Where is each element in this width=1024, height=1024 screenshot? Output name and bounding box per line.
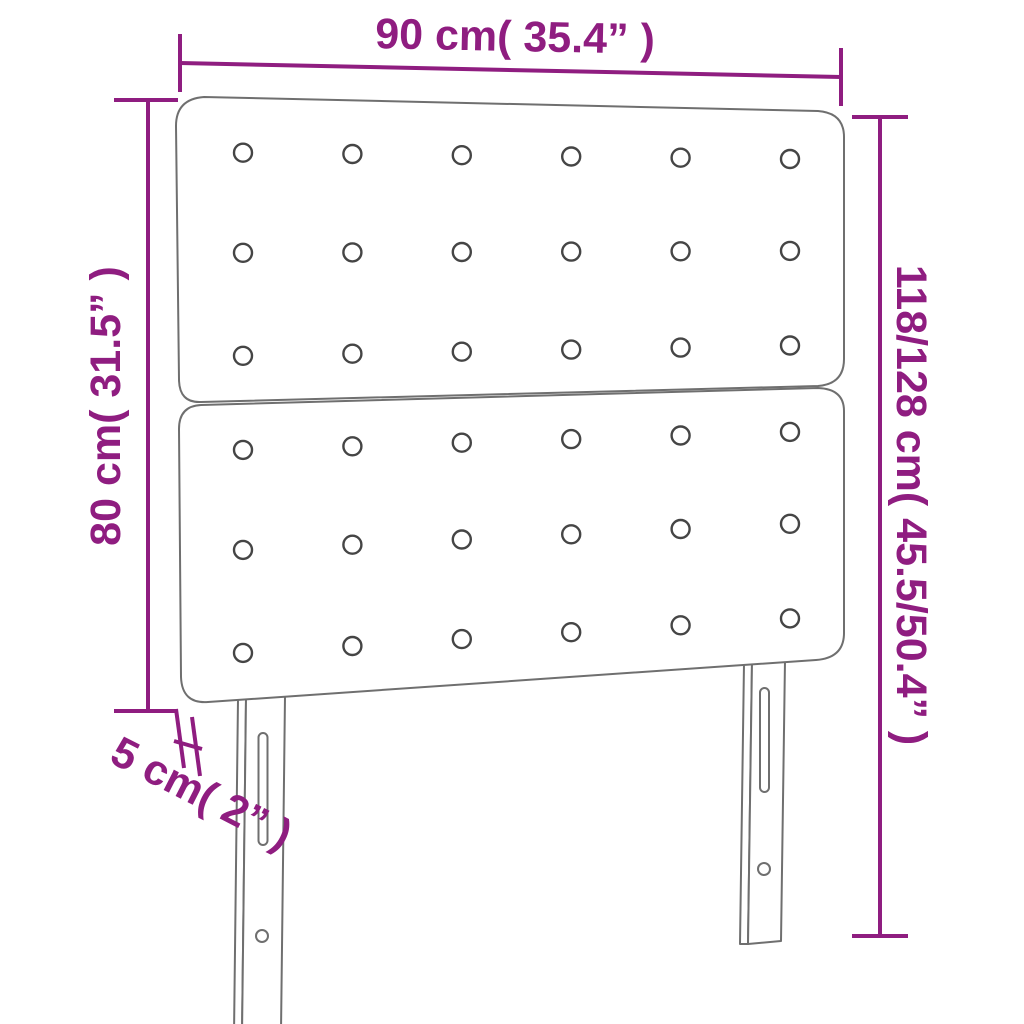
panel-height-dimension: 80 cm( 31.5” ): [82, 100, 178, 711]
headboard-left-leg: [234, 696, 285, 1024]
tufting-button: [672, 149, 690, 167]
tufting-button: [234, 244, 252, 262]
tufting-button: [562, 341, 580, 359]
tufting-button: [453, 531, 471, 549]
tufting-button: [672, 242, 690, 260]
tufting-button: [234, 347, 252, 365]
width-dimension: 90 cm( 35.4” ): [180, 10, 841, 106]
tufting-button: [343, 243, 361, 261]
tufting-button: [343, 536, 361, 554]
headboard-right-leg: [740, 660, 785, 944]
headboard-upper-panel: [176, 97, 844, 402]
tufting-button: [234, 144, 252, 162]
tufting-button: [672, 427, 690, 445]
tufting-button: [781, 515, 799, 533]
tufting-button: [234, 541, 252, 559]
tufting-button: [672, 520, 690, 538]
tufting-button: [343, 345, 361, 363]
headboard-lower-panel: [179, 388, 844, 702]
headboard-drawing: [176, 97, 844, 1024]
panel-height-dimension-label: 80 cm( 31.5” ): [82, 266, 130, 546]
tufting-button: [234, 644, 252, 662]
tufting-button: [453, 630, 471, 648]
width-dimension-label: 90 cm( 35.4” ): [375, 10, 656, 64]
tufting-button: [343, 637, 361, 655]
tufting-button: [453, 434, 471, 452]
tufting-button: [562, 430, 580, 448]
tufting-button: [343, 437, 361, 455]
tufting-button: [562, 525, 580, 543]
headboard-dimension-diagram: 90 cm( 35.4” ) 80 cm( 31.5” ) 118/128 cm…: [0, 0, 1024, 1024]
total-height-dimension-label: 118/128 cm( 45.5/50.4” ): [887, 265, 935, 746]
dimension-line: [180, 63, 841, 77]
right-leg-slot: [760, 688, 769, 792]
tufting-button: [343, 145, 361, 163]
tufting-button: [781, 423, 799, 441]
tufting-button: [781, 609, 799, 627]
tufting-button: [562, 148, 580, 166]
diagram-canvas: 90 cm( 35.4” ) 80 cm( 31.5” ) 118/128 cm…: [0, 0, 1024, 1024]
tufting-button: [562, 623, 580, 641]
tufting-button: [562, 243, 580, 261]
tufting-button: [781, 242, 799, 260]
tufting-button: [234, 441, 252, 459]
tufting-button: [781, 150, 799, 168]
tufting-button: [453, 243, 471, 261]
tufting-button: [672, 339, 690, 357]
tufting-button: [453, 146, 471, 164]
right-leg-screw-hole: [758, 863, 770, 875]
total-height-dimension: 118/128 cm( 45.5/50.4” ): [852, 117, 935, 936]
tufting-button: [781, 337, 799, 355]
tufting-button: [672, 616, 690, 634]
tufting-button: [453, 343, 471, 361]
left-leg-screw-hole: [256, 930, 268, 942]
